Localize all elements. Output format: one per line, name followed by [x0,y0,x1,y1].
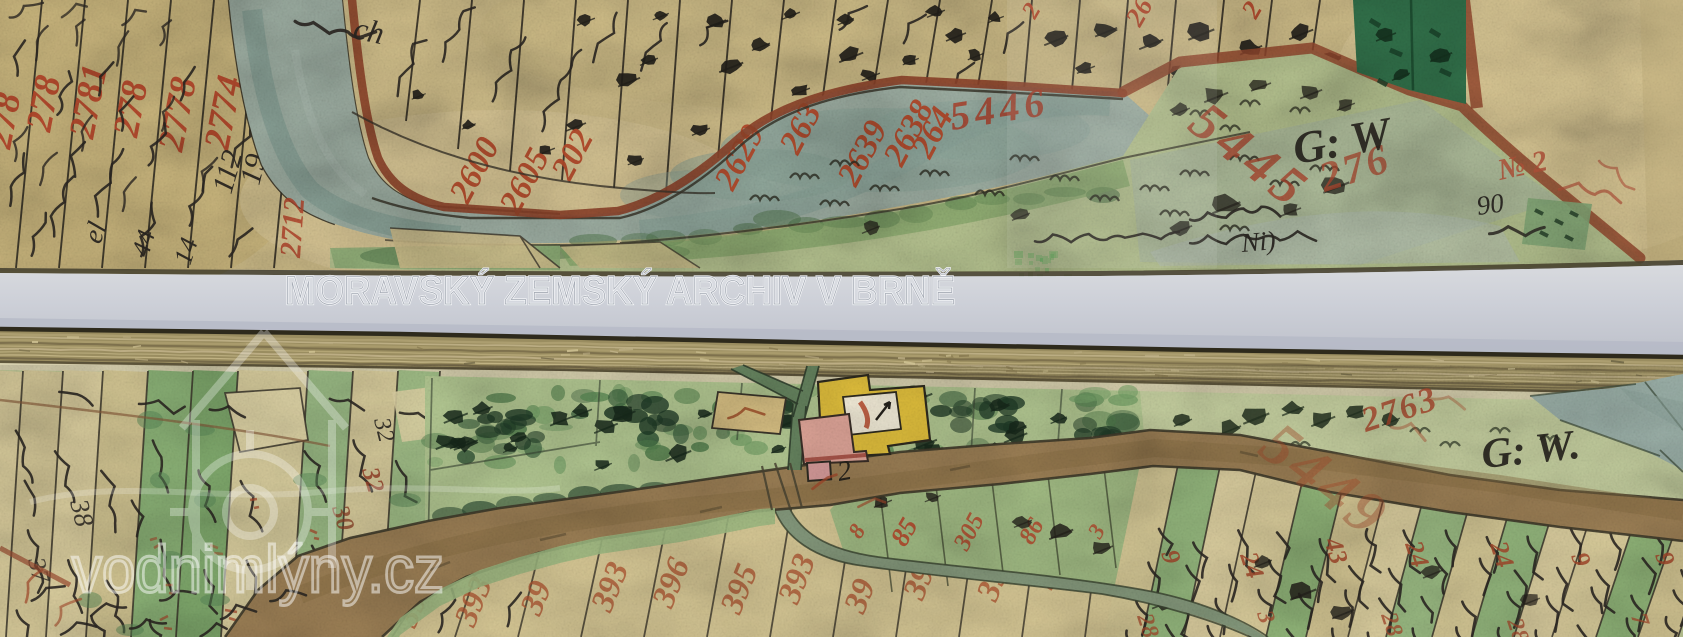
svg-text:vodnimlýny.cz: vodnimlýny.cz [72,532,444,606]
svg-text:MORAVSKÝ ZEMSKÝ ARCHIV V BRNĚ: MORAVSKÝ ZEMSKÝ ARCHIV V BRNĚ [285,267,955,313]
